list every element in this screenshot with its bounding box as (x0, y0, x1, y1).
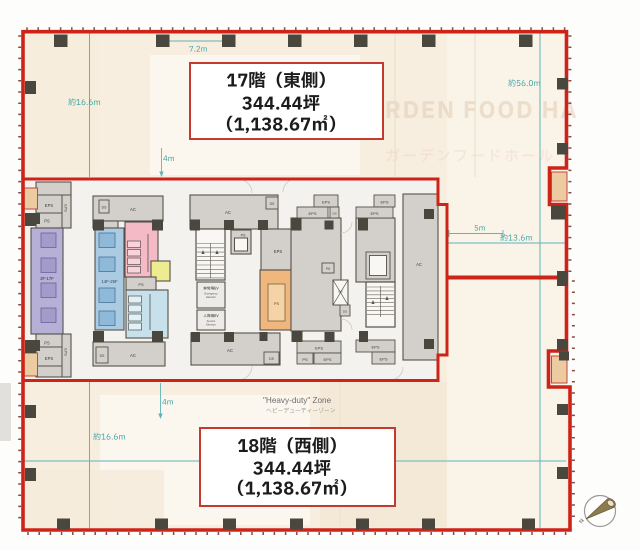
svg-text:Service: Service (207, 319, 216, 323)
svg-text:DS: DS (332, 212, 336, 216)
svg-text:EPS: EPS (370, 211, 378, 216)
svg-text:EPS: EPS (322, 200, 330, 205)
svg-text:EPS: EPS (315, 346, 323, 351)
svg-text:14F-25F: 14F-25F (101, 279, 118, 284)
svg-text:PS: PS (138, 282, 144, 287)
svg-text:Elevator: Elevator (206, 323, 216, 327)
svg-text:AC: AC (225, 210, 231, 215)
svg-text:EPS: EPS (64, 204, 68, 212)
svg-text:Elevator: Elevator (206, 295, 216, 299)
svg-text:DS: DS (100, 354, 105, 358)
svg-text:DS: DS (270, 202, 275, 206)
svg-text:EPS: EPS (45, 203, 54, 208)
svg-text:DS: DS (343, 310, 347, 314)
svg-text:EPS: EPS (45, 356, 54, 361)
svg-text:PS: PS (302, 357, 308, 362)
svg-text:EPS: EPS (64, 348, 68, 356)
svg-text:PS: PS (274, 302, 280, 306)
svg-text:PS: PS (241, 234, 246, 238)
svg-text:AC: AC (130, 207, 136, 212)
svg-text:AC: AC (130, 353, 136, 358)
svg-text:PS: PS (44, 341, 50, 346)
svg-text:DS: DS (338, 290, 342, 294)
svg-text:EPS: EPS (308, 211, 316, 216)
svg-text:Emergency: Emergency (204, 292, 218, 296)
svg-text:EPS: EPS (380, 200, 388, 205)
svg-text:EPS: EPS (371, 345, 379, 350)
svg-text:EPS: EPS (323, 357, 331, 362)
svg-text:AC: AC (416, 262, 422, 267)
svg-text:PS: PS (44, 219, 50, 224)
svg-text:3F-17F: 3F-17F (40, 276, 54, 281)
svg-text:"Heavy-duty" Zone: "Heavy-duty" Zone (263, 396, 332, 405)
svg-text:PS: PS (326, 267, 330, 271)
svg-text:DS: DS (102, 206, 107, 210)
svg-text:DS: DS (269, 357, 274, 361)
svg-text:EPS: EPS (379, 357, 387, 362)
svg-text:EPS: EPS (274, 249, 283, 254)
svg-text:AC: AC (227, 348, 233, 353)
